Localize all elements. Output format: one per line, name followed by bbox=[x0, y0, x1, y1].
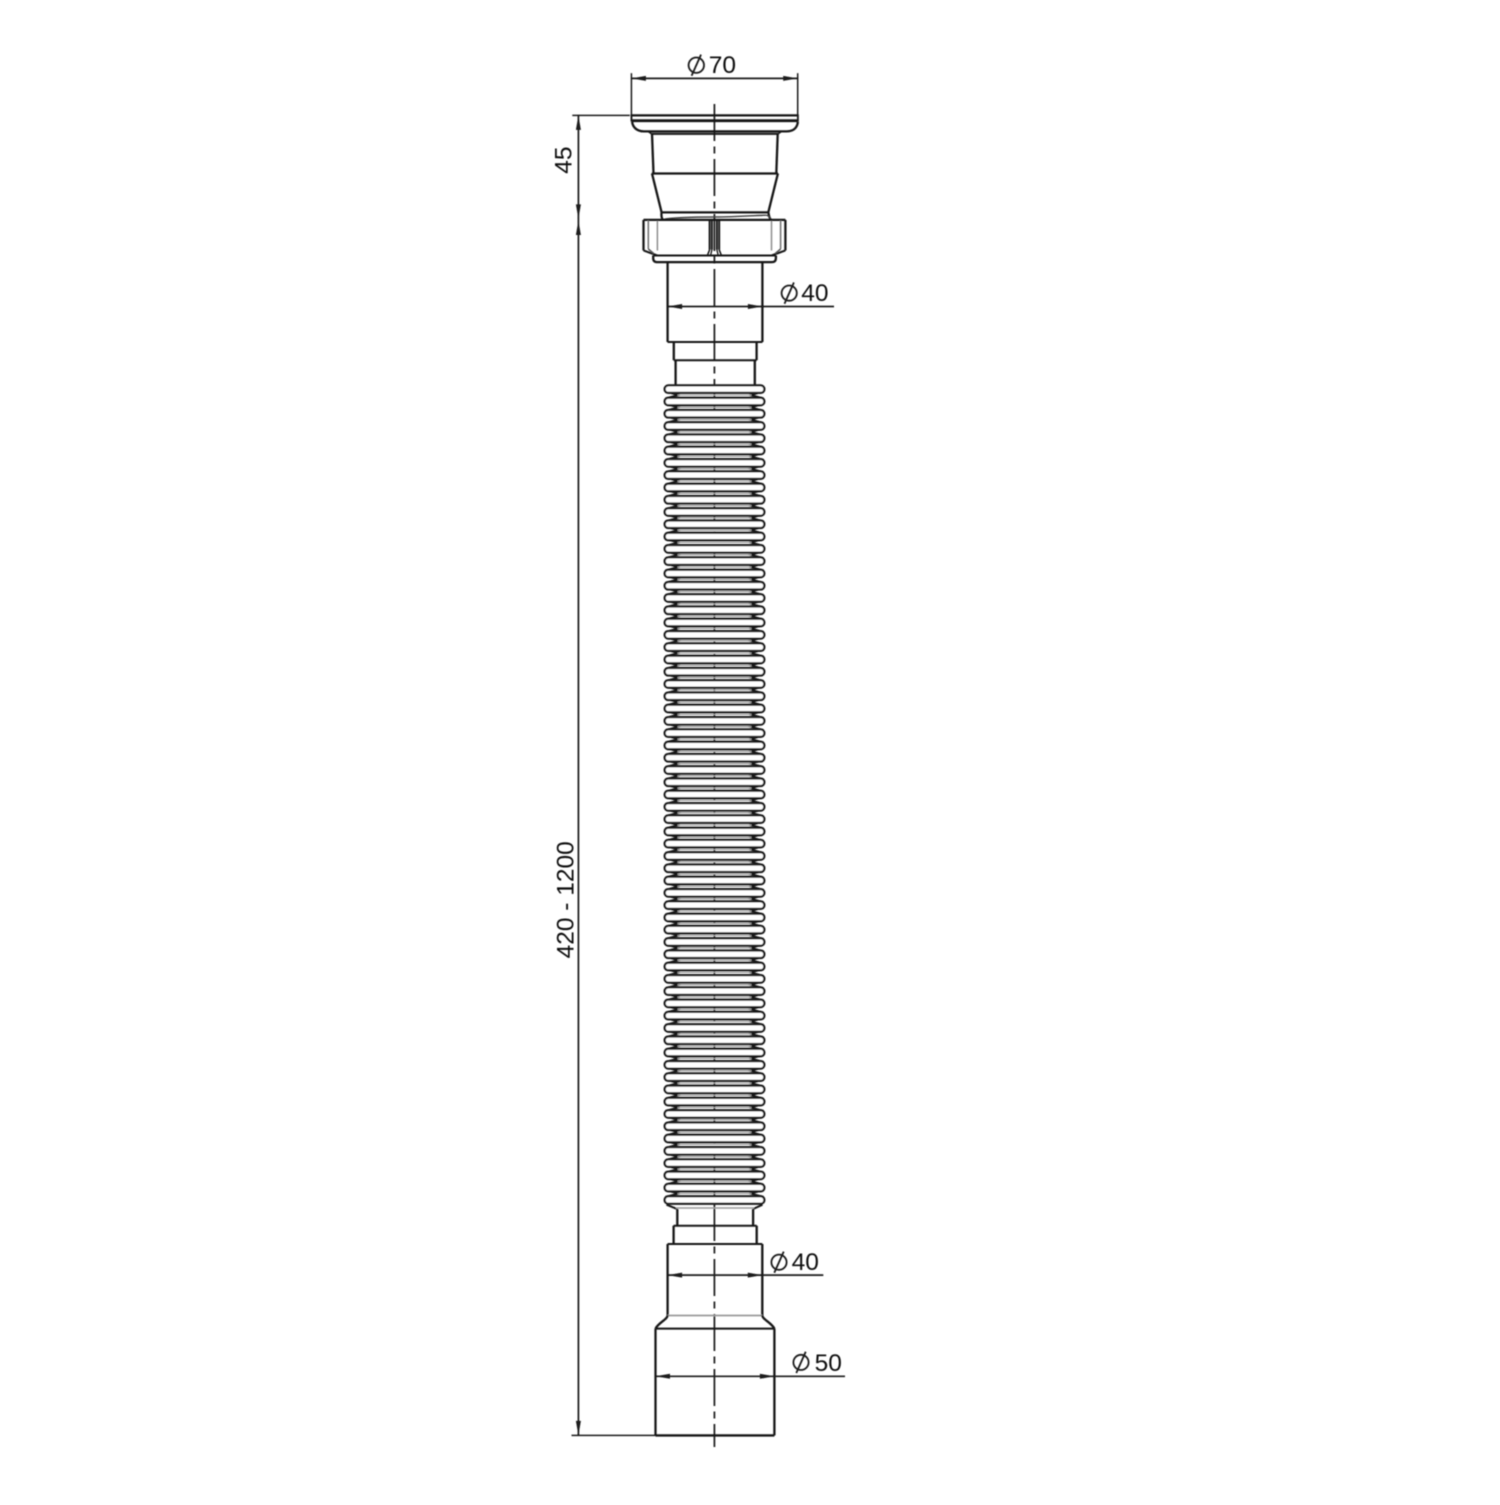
svg-text:420 - 1200: 420 - 1200 bbox=[553, 841, 580, 958]
svg-text:45: 45 bbox=[551, 147, 578, 174]
svg-text:50: 50 bbox=[815, 1350, 842, 1377]
svg-text:70: 70 bbox=[709, 52, 736, 79]
svg-text:40: 40 bbox=[801, 280, 828, 307]
svg-text:40: 40 bbox=[792, 1249, 819, 1276]
